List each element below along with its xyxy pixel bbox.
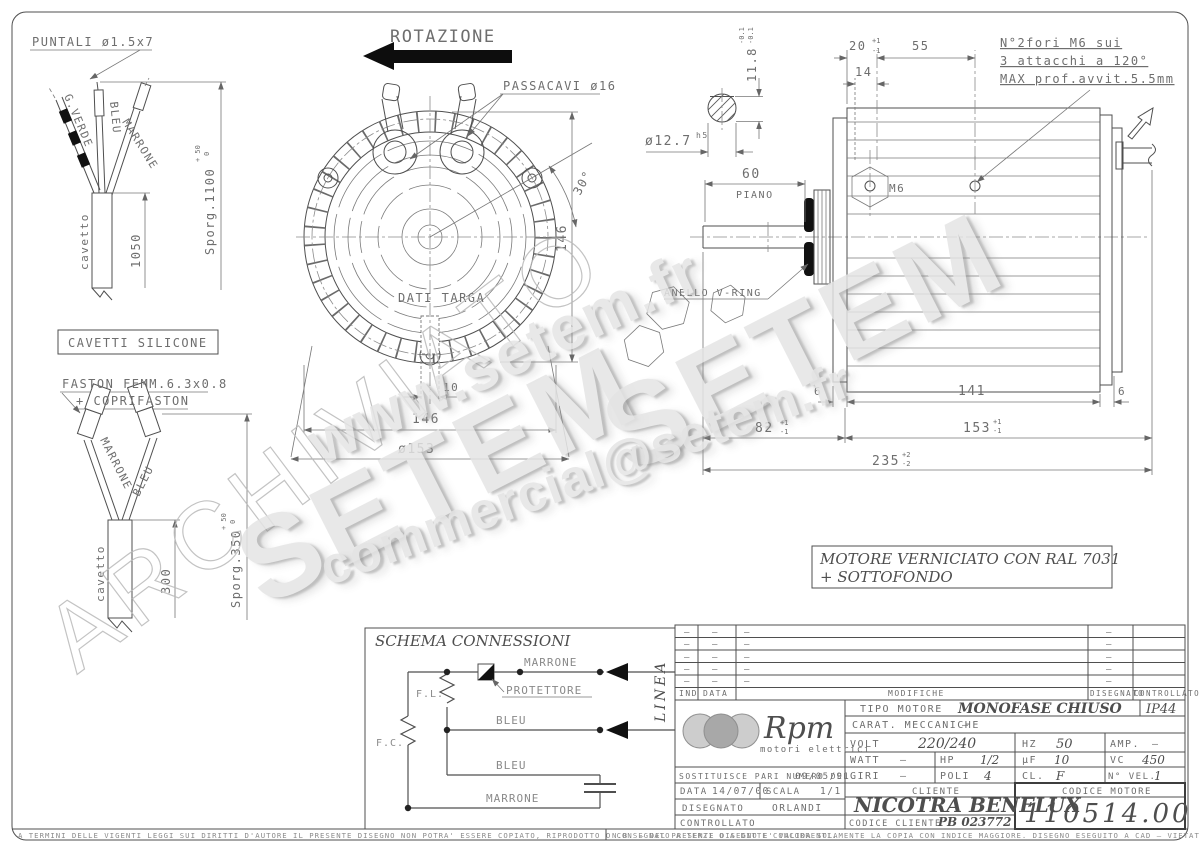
cavetto-label-top: cavetto [78, 213, 91, 270]
amp-value: – [1152, 739, 1160, 750]
amp-label: AMP. [1110, 739, 1140, 750]
rotation-arrow: ROTAZIONE [363, 27, 512, 70]
svg-text:–: – [712, 677, 718, 687]
dim-146h-label: 146 [412, 412, 440, 427]
svg-text:–: – [712, 665, 718, 675]
svg-text:–: – [744, 628, 750, 638]
dim-118-tol-a: -0.1 [738, 27, 746, 44]
rpm-logo-icon [683, 714, 759, 748]
cable-detail-top [30, 50, 226, 300]
dim-118-label: 11.8 [745, 47, 759, 82]
nvel-value: 1 [1154, 769, 1162, 783]
dim-20-tol-dn: -1 [872, 47, 880, 55]
sostituisce-data: 09/05/91 [795, 772, 850, 782]
sporg-1100-label: Sporg.1100 [203, 168, 217, 255]
front-view-drawing [291, 83, 600, 459]
sporg-1100-tol-up: + 50 [194, 145, 202, 162]
giri-value: – [900, 771, 908, 782]
dim-6l-label: 6 [814, 385, 822, 398]
puntali-label: PUNTALI ø1.5x7 [32, 35, 154, 49]
dim-60-piano [705, 180, 805, 222]
dim-153-label: 153 [963, 421, 991, 436]
cable-detail-bottom [58, 330, 252, 632]
svg-text:–: – [744, 677, 750, 687]
dim-20-tol-up: +1 [872, 37, 880, 45]
schema-marrone-top: MARRONE [524, 656, 577, 669]
cl-value: F [1055, 769, 1065, 783]
svg-text:–: – [1106, 677, 1112, 687]
sporg-350-tol-up: + 50 [220, 513, 228, 530]
dim-60-label: 60 [742, 167, 761, 182]
tipo-motore-label: TIPO MOTORE [860, 704, 943, 715]
watt-label: WATT [850, 755, 880, 766]
logo-name: Rpm [763, 711, 834, 746]
schema-bleu-mid: BLEU [496, 714, 527, 727]
uf-value: 10 [1054, 753, 1070, 767]
carat-label: CARAT. MECCANICHE [852, 720, 980, 731]
h5-label: h5 [696, 131, 709, 140]
data-label: DATA [680, 787, 708, 797]
m6-note-1: N°2fori M6 sui [1000, 36, 1122, 50]
carat-value: – [962, 720, 970, 731]
svg-text:–: – [684, 628, 690, 638]
dim-20-label: 20 [849, 39, 866, 53]
sporg-350-tol-dn: 0 [229, 520, 237, 524]
dim-153-tol-up: +1 [993, 418, 1001, 426]
dim-14-label: 14 [855, 65, 872, 79]
anello-v-ring-label: ANELLO V-RING [664, 288, 762, 299]
schema-linea: LINEA [653, 660, 669, 723]
disegnato-label: DISEGNATO [682, 804, 744, 814]
rear-rotation-arrow [1128, 108, 1153, 139]
schema-protettore: PROTETTORE [506, 684, 582, 697]
dim-153d-label: ø153 [398, 442, 435, 457]
volt-label: VOLT [850, 739, 880, 750]
dim-82-tol-up: +1 [780, 419, 788, 427]
v-ring [804, 198, 814, 232]
hp-label: HP [940, 755, 955, 766]
cavetto-label-bottom: cavetto [94, 545, 107, 602]
codice-cliente-label: CODICE CLIENTE [849, 819, 942, 829]
cable-gland-left [373, 83, 417, 174]
dim-82-label: 82 [755, 421, 774, 436]
schema-title: SCHEMA CONNESSIONI [375, 632, 571, 650]
dim-235-tol-up: +2 [902, 451, 910, 459]
poli-value: 4 [983, 769, 992, 783]
wire-label-marrone: MARRONE [119, 117, 160, 172]
vc-label: VC [1110, 755, 1125, 766]
svg-text:–: – [1106, 665, 1112, 675]
svg-text:–: – [1106, 653, 1112, 663]
rev-header-controllato: CONTROLLATO [1134, 689, 1200, 698]
svg-text:–: – [712, 640, 718, 650]
nvel-label: N° VEL. [1108, 772, 1156, 782]
m6-note-2: 3 attacchi a 120° [1000, 54, 1148, 68]
wire-label-bleu-b: BLEU [130, 464, 156, 499]
dia-127-label: ø12.7 [645, 134, 692, 149]
dim-141-label: 141 [958, 384, 986, 399]
hz-label: HZ [1022, 739, 1037, 750]
giri-label: GIRI [850, 771, 880, 782]
rev-header-modifiche: MODIFICHE [888, 689, 945, 698]
rev-rows-dashes: –––– –––– –––– –––– –––– [684, 628, 1112, 687]
m6-note-3: MAX prof.avvit.5.5mm [1000, 72, 1175, 86]
svg-text:–: – [712, 628, 718, 638]
scala-label: SCALA [766, 787, 801, 797]
svg-text:–: – [712, 653, 718, 663]
svg-text:–: – [684, 653, 690, 663]
dim-146v-label: 146 [555, 224, 570, 252]
paint-note-1: MOTORE VERNICIATO CON RAL 7031 [819, 550, 1120, 568]
protezione-value: IP44 [1145, 702, 1176, 717]
faston-label-2: + COPRIFASTON [76, 394, 189, 408]
passacavi-leaders [410, 94, 600, 159]
codice-motore-value: 110514.00 [1024, 799, 1192, 829]
dim-55-label: 55 [912, 39, 929, 53]
angle-30-label: 30° [570, 168, 595, 198]
poli-label: POLI [940, 771, 970, 782]
svg-text:–: – [744, 640, 750, 650]
cavetti-silicone-label: CAVETTI SILICONE [68, 336, 208, 350]
rotazione-label: ROTAZIONE [390, 27, 496, 47]
tipo-motore-value: MONOFASE CHIUSO [957, 701, 1123, 717]
rev-header-data: DATA [703, 689, 728, 698]
svg-text:–: – [744, 665, 750, 675]
side-view-drawing [622, 50, 1155, 475]
dim-118-tol-b: -0.1 [747, 27, 755, 44]
paint-note-2: + SOTTOFONDO [820, 568, 953, 586]
dim-235-label: 235 [872, 454, 900, 469]
schema-fc: F.C. [376, 738, 404, 749]
sporg-1100-tol-dn: 0 [203, 152, 211, 156]
volt-value: 220/240 [917, 736, 976, 752]
codice-motore-label: CODICE MOTORE [1062, 787, 1152, 797]
schema-fl: F.L. [416, 689, 444, 700]
passacavi-label: PASSACAVI ø16 [503, 79, 616, 93]
dim-6r-label: 6 [1118, 385, 1126, 398]
svg-text:–: – [1106, 628, 1112, 638]
schema-marrone-bottom: MARRONE [486, 792, 539, 805]
m6-label: M6 [889, 182, 905, 195]
dati-targa-label: DATI TARGA [398, 291, 485, 305]
dim-153-tol-dn: -1 [993, 427, 1001, 435]
controllato-label: CONTROLLATO [680, 819, 756, 829]
vc-value: 450 [1141, 753, 1165, 767]
hz-value: 50 [1056, 737, 1073, 752]
piano-label: PIANO [736, 190, 774, 201]
watt-value: – [900, 755, 908, 766]
hp-value: 1/2 [980, 753, 999, 767]
dim-235-tol-dn: -2 [902, 460, 910, 468]
cable-gland-right [440, 83, 484, 174]
drawing-sheet: ROTAZIONE [0, 0, 1200, 849]
schema-bleu-low: BLEU [496, 759, 527, 772]
footer-right: N.B. – DEL PRESENTE DISEGNO E' VALIDA SO… [612, 831, 1200, 840]
dim-82-tol-dn: -1 [780, 428, 788, 436]
dim-300-label: 300 [159, 568, 173, 594]
svg-text:–: – [684, 677, 690, 687]
sporg-350-label: Sporg.350 [229, 529, 243, 608]
wire-label-marrone-b: MARRONE [97, 435, 134, 492]
svg-text:–: – [744, 653, 750, 663]
uf-label: μF [1022, 755, 1037, 766]
linea-arrow-2 [606, 721, 628, 739]
dim-1050-label: 1050 [129, 233, 143, 268]
rev-header-ind: IND [679, 689, 698, 698]
cad-line-art: ROTAZIONE [0, 0, 1200, 849]
linea-arrow-1 [606, 663, 628, 681]
wire-label-bleu: BLEU [107, 101, 123, 135]
codice-cliente-value: PB 023772 [937, 815, 1011, 829]
scala-value: 1/1 [820, 786, 842, 797]
disegnato-value: ORLANDI [772, 803, 823, 814]
svg-text:–: – [684, 665, 690, 675]
svg-text:–: – [684, 640, 690, 650]
cl-label: CL. [1022, 771, 1045, 782]
dim-10-label: 10 [443, 381, 459, 394]
data-value: 14/07/00 [712, 786, 770, 797]
svg-text:–: – [1106, 640, 1112, 650]
faston-label-1: FASTON FEMM.6.3x0.8 [62, 377, 228, 391]
